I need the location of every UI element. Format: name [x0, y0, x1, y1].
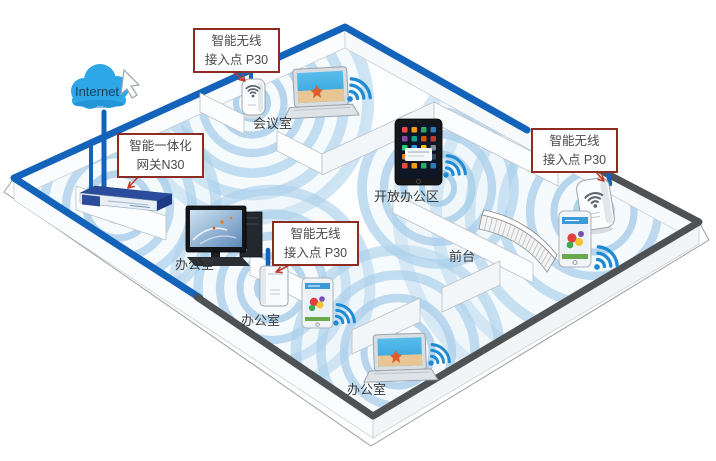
- callout-ap-top-line1: 智能无线: [211, 32, 261, 51]
- room-label-front-desk: 前台: [449, 246, 475, 265]
- callout-ap-top: 智能无线 接入点 P30: [193, 28, 280, 73]
- room-label-meeting: 会议室: [253, 113, 292, 132]
- callout-gateway: 智能一体化 网关N30: [117, 133, 204, 178]
- room-label-office-bottom: 办公室: [347, 379, 386, 398]
- internet-label: Internet: [66, 84, 128, 99]
- callout-ap-top-line2: 接入点 P30: [205, 51, 268, 70]
- room-label-office-mid: 办公室: [241, 310, 280, 329]
- callout-ap-mid-line1: 智能无线: [290, 225, 340, 244]
- callout-gateway-line1: 智能一体化: [129, 137, 192, 156]
- callout-ap-mid-line2: 接入点 P30: [284, 244, 347, 263]
- callout-ap-mid: 智能无线 接入点 P30: [272, 221, 359, 266]
- room-label-office-left: 办公室: [175, 254, 214, 273]
- office-wireless-network-diagram: Internet 智能无线 接入点 P30 智能一体化 网关N30 智能无线 接…: [0, 0, 716, 461]
- access-point-office: [260, 266, 288, 306]
- callout-gateway-line2: 网关N30: [137, 156, 185, 175]
- tablet-open-area: [395, 119, 442, 185]
- callout-ap-right-line1: 智能无线: [549, 132, 599, 151]
- callout-ap-right: 智能无线 接入点 P30: [531, 128, 618, 173]
- smartphone-front-desk: [559, 211, 591, 267]
- smartphone-office: [302, 278, 333, 328]
- room-label-open-office: 开放办公区: [374, 186, 439, 205]
- callout-ap-right-line2: 接入点 P30: [543, 151, 606, 170]
